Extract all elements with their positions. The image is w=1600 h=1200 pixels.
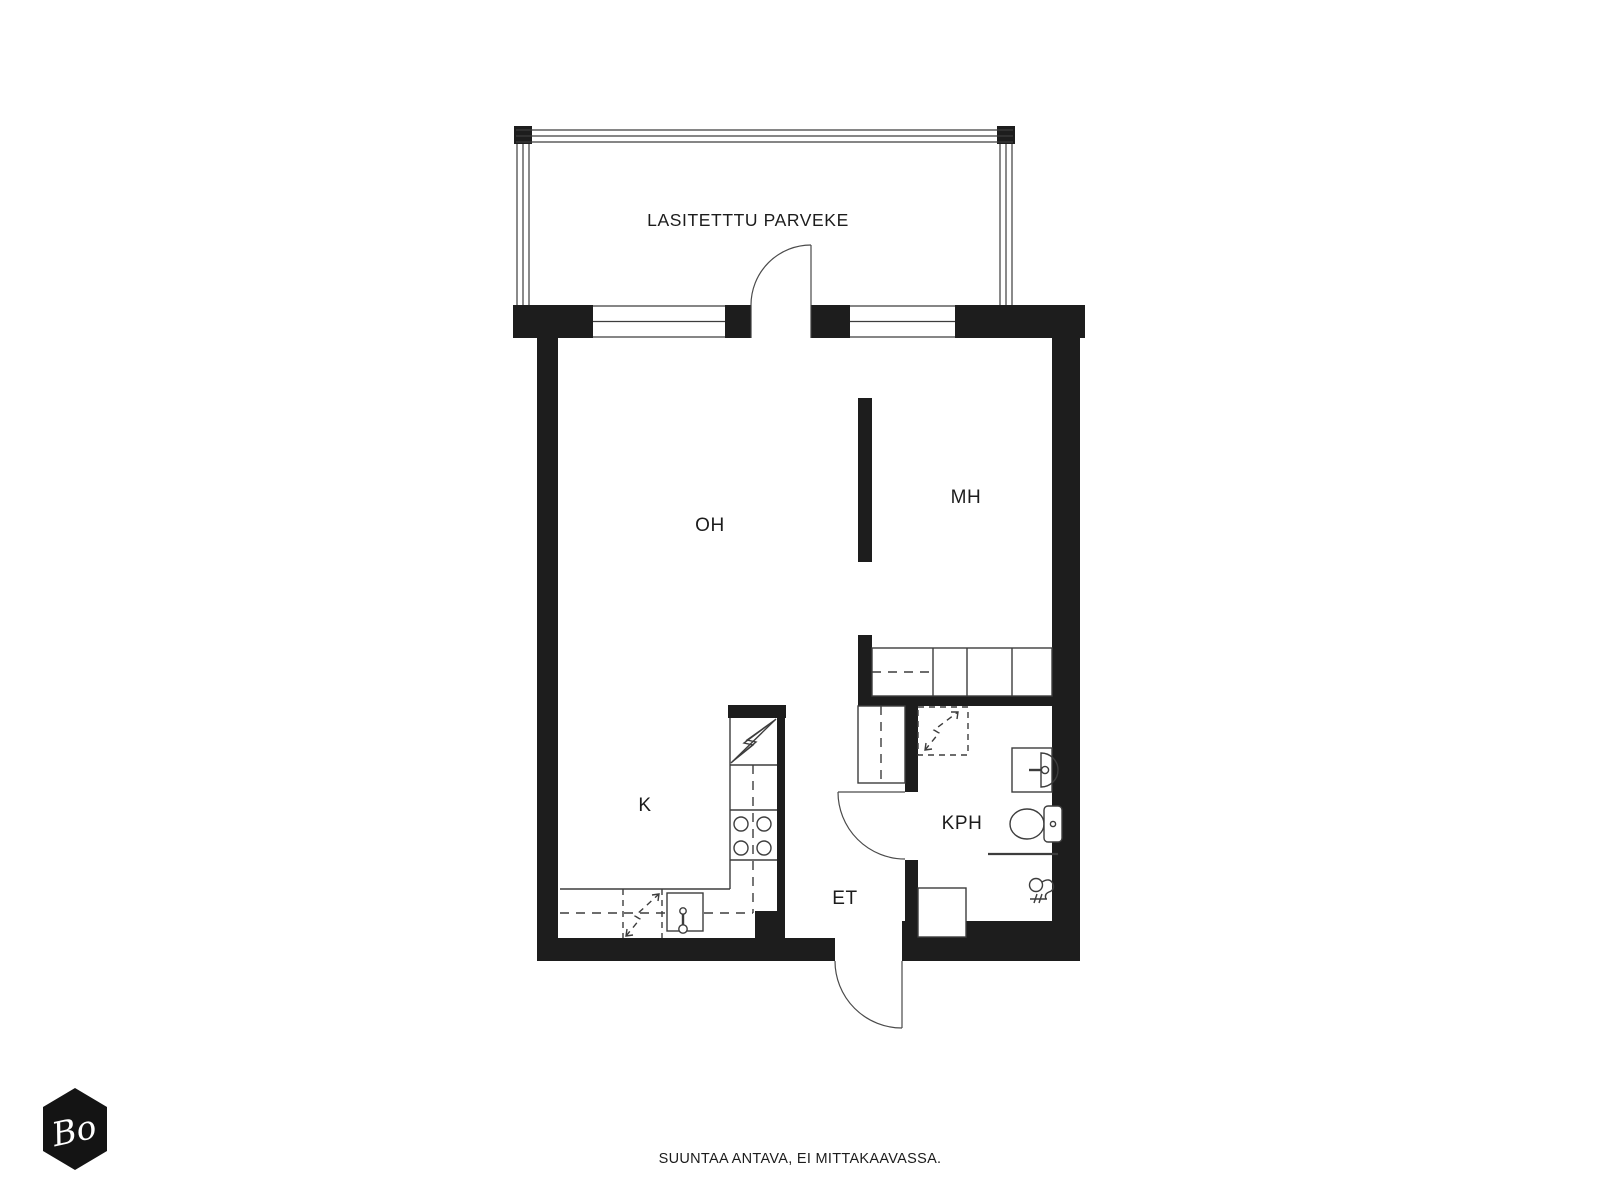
wall-bottom-left bbox=[537, 938, 835, 961]
wall-below-closets bbox=[858, 696, 1052, 706]
bathroom-door-arc bbox=[838, 792, 905, 859]
wall-partition-oh-mh bbox=[858, 398, 872, 562]
washing-machine-reservation-icon bbox=[918, 707, 968, 755]
wall-peninsula bbox=[777, 718, 785, 938]
washbasin-icon bbox=[1012, 748, 1058, 792]
balcony-corner-post-right bbox=[997, 126, 1015, 144]
balcony-door-jambs bbox=[751, 305, 811, 338]
floor-drain-icon bbox=[1030, 879, 1054, 904]
doors bbox=[751, 245, 905, 1028]
closet-row bbox=[872, 648, 1052, 696]
room-label-bedroom: MH bbox=[951, 487, 982, 508]
entrance-door-arc bbox=[835, 961, 902, 1028]
wall-et-kph-upper bbox=[905, 706, 918, 792]
logo: Bo bbox=[43, 1088, 107, 1170]
duct-shaft bbox=[918, 888, 966, 937]
balcony-door-arc bbox=[751, 245, 811, 305]
room-label-entry: ET bbox=[832, 888, 857, 909]
wall-et-kph-lower bbox=[905, 860, 918, 938]
wall-left bbox=[537, 338, 558, 961]
refrigerator-icon bbox=[731, 719, 776, 763]
floorplan-drawing: LASITETTTU PARVEKE OH MH K KPH ET SUUNTA… bbox=[0, 0, 1600, 1200]
wall-peninsula-cap bbox=[728, 705, 786, 718]
wardrobe-closet bbox=[858, 706, 905, 783]
balcony-corner-post-left bbox=[514, 126, 532, 144]
balcony-label: LASITETTTU PARVEKE bbox=[647, 210, 849, 230]
room-label-kitchen: K bbox=[638, 795, 651, 816]
wall-right bbox=[1052, 338, 1080, 961]
wall-top-c bbox=[811, 305, 850, 338]
wall-top-a bbox=[513, 305, 593, 338]
fixtures bbox=[560, 648, 1062, 938]
toilet-icon bbox=[1010, 806, 1062, 842]
floorplan-page: LASITETTTU PARVEKE OH MH K KPH ET SUUNTA… bbox=[0, 0, 1600, 1200]
room-label-living: OH bbox=[695, 515, 725, 536]
window-bedroom bbox=[850, 306, 955, 337]
wall-top-d bbox=[955, 305, 1085, 338]
wall-closet-side bbox=[858, 635, 872, 706]
sink-icon bbox=[667, 893, 703, 933]
walls bbox=[513, 126, 1085, 961]
kitchen-counter bbox=[560, 718, 777, 913]
window-living-room bbox=[593, 306, 725, 337]
room-label-bathroom: KPH bbox=[942, 813, 983, 834]
wall-top-b bbox=[725, 305, 751, 338]
disclaimer-text: SUUNTAA ANTAVA, EI MITTAKAAVASSA. bbox=[659, 1151, 942, 1167]
windows bbox=[593, 305, 955, 338]
